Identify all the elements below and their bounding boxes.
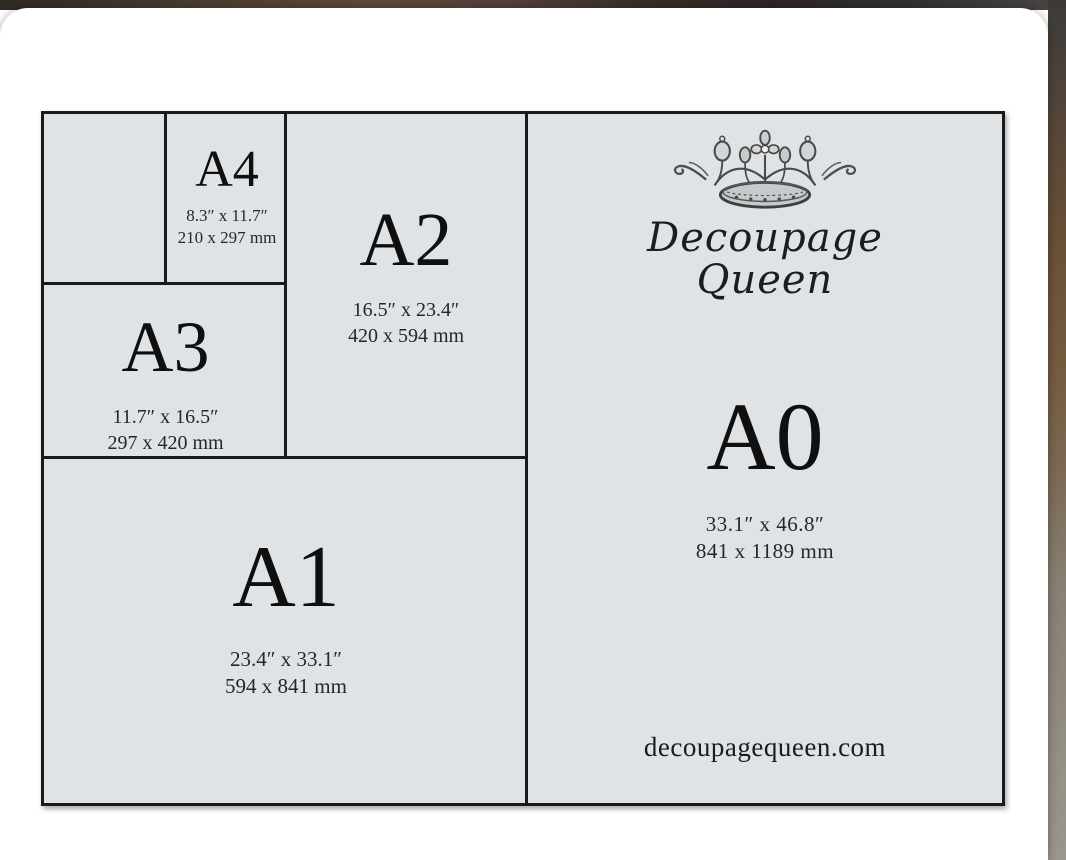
size-box-a1: A1 23.4″ x 33.1″ 594 x 841 mm bbox=[44, 534, 528, 700]
size-mm-a3: 297 x 420 mm bbox=[107, 431, 223, 457]
divider-a3-a1 bbox=[44, 456, 528, 459]
size-box-a2: A2 16.5″ x 23.4″ 420 x 594 mm bbox=[287, 202, 525, 349]
size-label-a0: A0 bbox=[706, 389, 823, 485]
brand-name-line2: Queen bbox=[697, 260, 834, 300]
size-inches-a3: 11.7″ x 16.5″ bbox=[107, 405, 223, 431]
brand-website: decoupagequeen.com bbox=[528, 732, 1002, 763]
size-mm-a2: 420 x 594 mm bbox=[348, 324, 464, 350]
size-inches-a4: 8.3″ x 11.7″ bbox=[178, 205, 277, 227]
divider-a4-a3 bbox=[44, 282, 287, 285]
brand-logo: Decoupage Queen bbox=[528, 126, 1002, 300]
image-viewer-canvas: A4 8.3″ x 11.7″ 210 x 297 mm A2 16.5″ x … bbox=[0, 0, 1066, 860]
size-box-a3: A3 11.7″ x 16.5″ 297 x 420 mm bbox=[44, 311, 287, 456]
size-mm-a1: 594 x 841 mm bbox=[225, 673, 347, 700]
size-box-a4: A4 8.3″ x 11.7″ 210 x 297 mm bbox=[167, 144, 287, 249]
size-mm-a4: 210 x 297 mm bbox=[178, 227, 277, 249]
crown-icon bbox=[670, 126, 860, 218]
size-inches-a2: 16.5″ x 23.4″ bbox=[348, 298, 464, 324]
brand-name-line1: Decoupage bbox=[647, 218, 883, 258]
photo-backdrop-right bbox=[1048, 0, 1066, 860]
size-inches-a0: 33.1″ x 46.8″ bbox=[696, 511, 834, 538]
size-label-a4: A4 bbox=[195, 144, 259, 196]
size-mm-a0: 841 x 1189 mm bbox=[696, 538, 834, 565]
size-label-a3: A3 bbox=[122, 311, 210, 383]
size-box-a0: Decoupage Queen A0 33.1″ x 46.8″ 841 x 1… bbox=[528, 114, 1002, 803]
infographic-card: A4 8.3″ x 11.7″ 210 x 297 mm A2 16.5″ x … bbox=[0, 8, 1048, 860]
size-inches-a1: 23.4″ x 33.1″ bbox=[225, 646, 347, 673]
paper-size-chart: A4 8.3″ x 11.7″ 210 x 297 mm A2 16.5″ x … bbox=[41, 111, 1005, 806]
size-label-a2: A2 bbox=[360, 202, 453, 278]
size-label-a1: A1 bbox=[232, 534, 340, 622]
